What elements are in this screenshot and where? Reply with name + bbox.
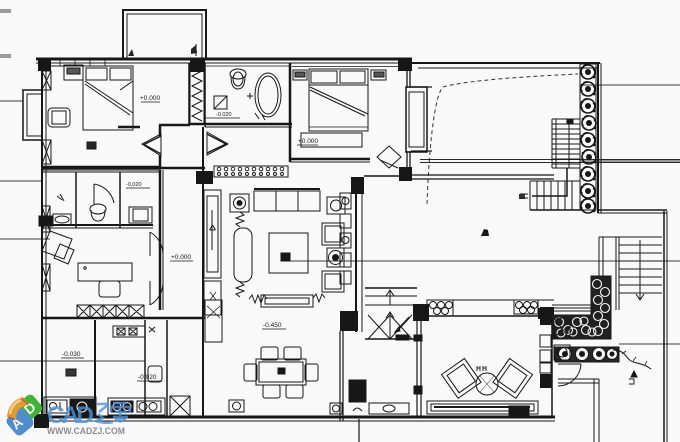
svg-text:-0.020: -0.020	[138, 374, 157, 381]
svg-text:+0.000: +0.000	[171, 254, 191, 261]
svg-text:-0.020: -0.020	[126, 182, 142, 188]
svg-text:-0.450: -0.450	[263, 322, 282, 329]
svg-text:CAD: CAD	[47, 402, 94, 429]
svg-text:+0.000: +0.000	[140, 95, 160, 102]
svg-text:-0.020: -0.020	[216, 112, 232, 118]
svg-text:-0.030: -0.030	[62, 351, 81, 358]
svg-text:WWW.CADZJ.COM: WWW.CADZJ.COM	[47, 426, 125, 437]
svg-text:+0.000: +0.000	[298, 138, 318, 145]
